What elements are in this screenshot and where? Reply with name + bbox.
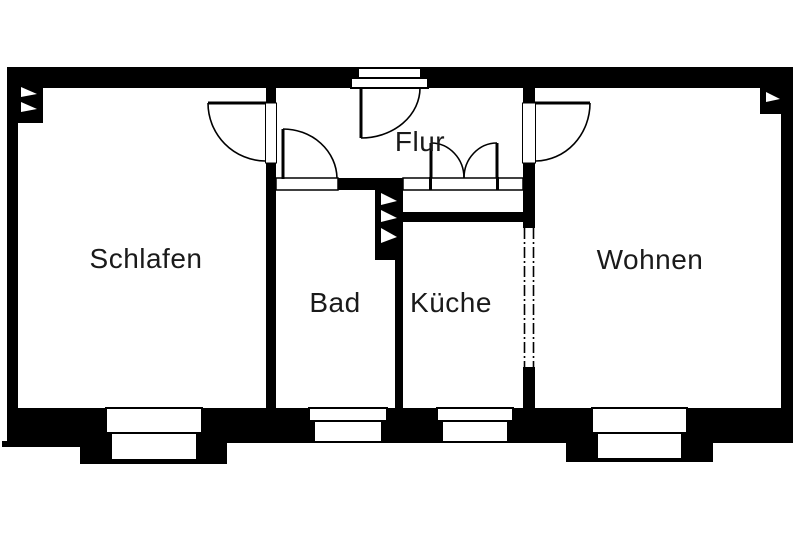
bad-door-leaf xyxy=(282,129,285,179)
window-schlafen xyxy=(106,408,202,460)
door-gap-wohnen xyxy=(523,103,536,163)
wall-kueche-top xyxy=(402,212,525,222)
entrance-threshold-outer xyxy=(358,68,421,78)
double-door-leaf-right xyxy=(496,143,499,178)
window-kueche-inner xyxy=(437,408,513,421)
schlafen-door-leaf xyxy=(208,102,266,105)
floor-plan: Schlafen Flur Bad Küche Wohnen xyxy=(0,0,800,534)
door-threshold-kueche xyxy=(403,178,523,190)
window-wohnen xyxy=(592,408,687,459)
window-kueche xyxy=(437,408,513,442)
door-gap-schlafen xyxy=(266,103,277,163)
outer-wall-left xyxy=(7,67,18,443)
window-wohnen-outer xyxy=(597,433,682,459)
room-label-wohnen: Wohnen xyxy=(597,244,704,275)
window-bad-outer xyxy=(314,421,382,442)
dashed-wall-section xyxy=(523,228,535,367)
outer-wall-right xyxy=(781,67,793,443)
entrance-threshold-inner xyxy=(351,78,428,88)
wall-bad-kueche xyxy=(395,260,403,408)
window-schlafen-inner xyxy=(106,408,202,433)
double-door-jamb-right xyxy=(496,177,499,190)
door-threshold-bad xyxy=(276,178,338,190)
entrance-door-leaf xyxy=(360,88,363,138)
window-bad-inner xyxy=(309,408,387,421)
window-kueche-outer xyxy=(442,421,508,442)
room-label-kueche: Küche xyxy=(410,287,492,318)
window-bad xyxy=(309,408,387,442)
window-schlafen-outer xyxy=(111,433,197,460)
corner-block-top-right xyxy=(760,68,792,114)
room-label-schlafen: Schlafen xyxy=(90,243,203,274)
wall-flur-bottom-segment xyxy=(338,178,375,190)
window-wohnen-inner xyxy=(592,408,687,433)
bottom-left-step xyxy=(2,441,80,447)
room-label-flur: Flur xyxy=(395,126,445,157)
double-door-jamb-left xyxy=(429,177,432,190)
room-label-bad: Bad xyxy=(309,287,360,318)
floor-plan-canvas: Schlafen Flur Bad Küche Wohnen xyxy=(0,0,800,534)
wohnen-door-leaf xyxy=(535,102,590,105)
